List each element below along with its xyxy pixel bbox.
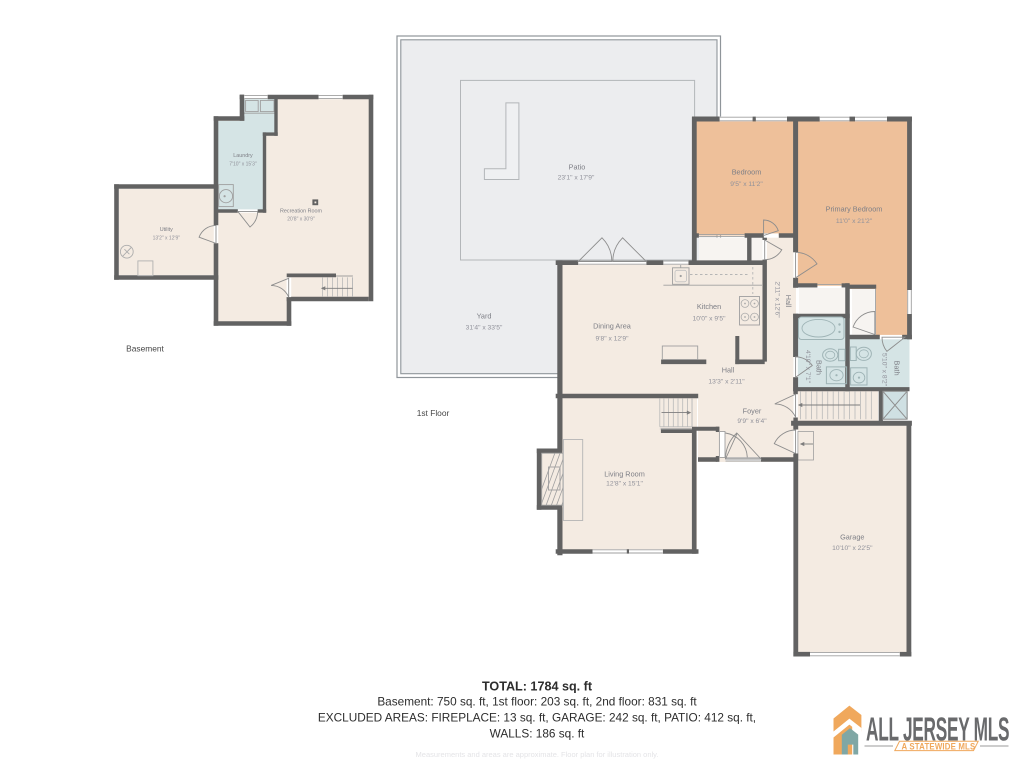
svg-text:Basement: Basement [126,344,164,354]
svg-text:Dining Area: Dining Area [593,321,632,330]
svg-text:Recreation Room: Recreation Room [280,208,322,214]
svg-text:Basement: 750 sq. ft, 1st floo: Basement: 750 sq. ft, 1st floor: 203 sq.… [377,695,697,709]
svg-text:9'5" x 11'2": 9'5" x 11'2" [730,181,763,188]
svg-text:10'10" x 22'5": 10'10" x 22'5" [832,545,873,552]
svg-text:5'10" x 8'2": 5'10" x 8'2" [881,353,888,387]
svg-text:7'10" x 15'3": 7'10" x 15'3" [229,162,257,168]
svg-text:Yard: Yard [477,311,492,320]
svg-text:4'10" x 7'1": 4'10" x 7'1" [804,350,811,384]
svg-text:Measurements and areas are app: Measurements and areas are approximate. … [416,750,659,759]
svg-text:31'4" x 33'5": 31'4" x 33'5" [466,325,503,332]
svg-text:Primary Bedroom: Primary Bedroom [826,204,883,213]
svg-text:Utility: Utility [160,227,173,233]
svg-text:11'0" x 21'2": 11'0" x 21'2" [836,218,873,225]
svg-text:2'11" x 12'6": 2'11" x 12'6" [774,281,781,318]
svg-text:1st Floor: 1st Floor [417,408,450,418]
svg-text:Laundry: Laundry [233,153,253,159]
svg-text:12'8" x 15'1": 12'8" x 15'1" [606,480,643,487]
svg-text:13'2" x 12'9": 13'2" x 12'9" [153,235,181,241]
svg-text:Hall: Hall [722,366,735,375]
svg-text:10'0" x 9'5": 10'0" x 9'5" [693,316,727,323]
svg-text:Hall: Hall [784,295,793,308]
svg-text:23'1" x 17'9": 23'1" x 17'9" [558,174,595,181]
svg-text:20'8" x 30'9": 20'8" x 30'9" [287,217,315,223]
svg-text:Garage: Garage [840,532,864,541]
svg-text:A STATEWIDE MLS: A STATEWIDE MLS [902,741,976,752]
svg-text:TOTAL: 1784 sq. ft: TOTAL: 1784 sq. ft [482,679,593,693]
svg-text:Foyer: Foyer [743,406,762,415]
svg-text:9'9" x 6'4": 9'9" x 6'4" [737,418,767,425]
svg-text:Kitchen: Kitchen [697,302,721,311]
svg-text:Patio: Patio [569,162,586,171]
svg-text:Bath: Bath [815,360,824,375]
svg-text:13'3" x 2'11": 13'3" x 2'11" [708,378,745,385]
svg-text:Bedroom: Bedroom [732,167,762,176]
svg-text:9'8" x 12'9": 9'8" x 12'9" [596,336,630,343]
svg-text:EXCLUDED AREAS: FIREPLACE: 13: EXCLUDED AREAS: FIREPLACE: 13 sq. ft, GA… [318,711,756,725]
svg-text:Living Room: Living Room [604,470,645,479]
svg-text:WALLS: 186 sq. ft: WALLS: 186 sq. ft [490,727,585,741]
svg-text:Bath: Bath [892,360,901,375]
